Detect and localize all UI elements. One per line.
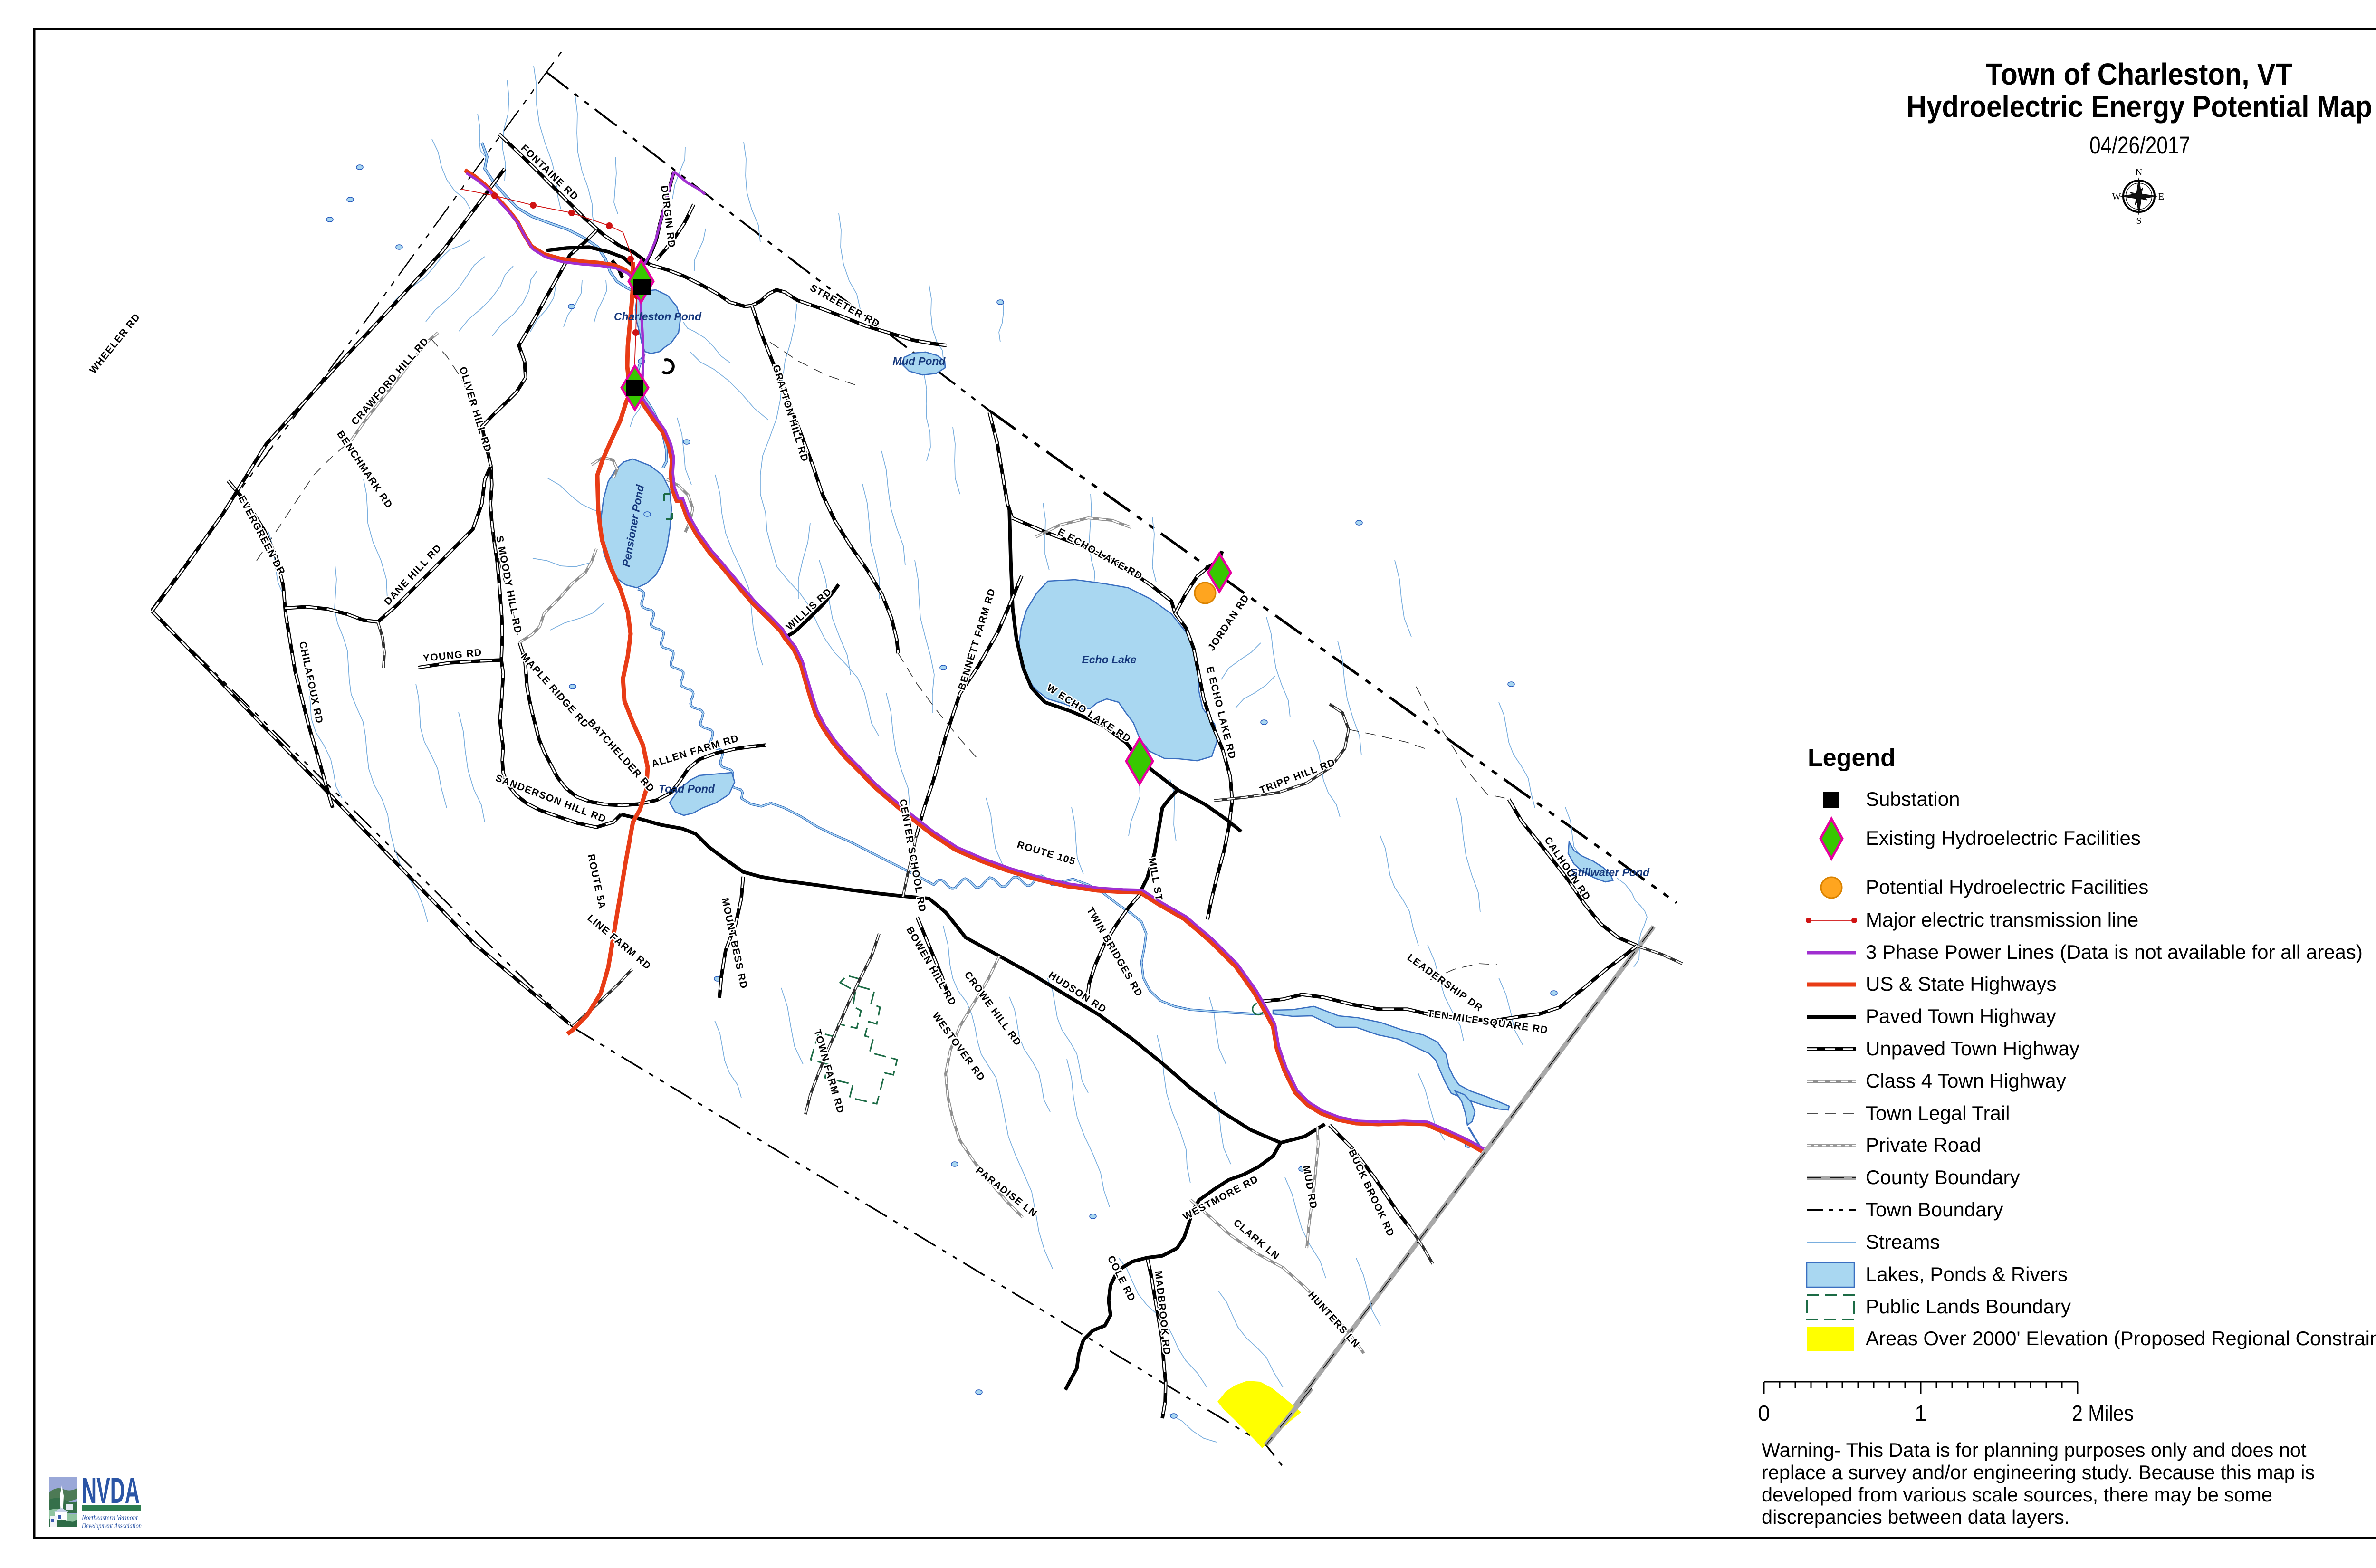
svg-text:W: W bbox=[2112, 191, 2121, 202]
svg-text:Streams: Streams bbox=[1866, 1231, 1940, 1253]
svg-text:Major electric transmission li: Major electric transmission line bbox=[1866, 908, 2138, 931]
svg-text:Mud Pond: Mud Pond bbox=[892, 355, 946, 367]
svg-text:Hydroelectric Energy Potential: Hydroelectric Energy Potential Map bbox=[1907, 89, 2372, 124]
svg-text:Lakes, Ponds & Rivers: Lakes, Ponds & Rivers bbox=[1866, 1263, 2068, 1285]
svg-text:3 Phase Power Lines (Data is n: 3 Phase Power Lines (Data is not availab… bbox=[1866, 941, 2363, 963]
svg-text:Stillwater Pond: Stillwater Pond bbox=[1571, 866, 1650, 879]
svg-text:developed from various scale s: developed from various scale sources, th… bbox=[1762, 1483, 2272, 1506]
svg-text:US & State Highways: US & State Highways bbox=[1866, 973, 2057, 995]
svg-text:Existing Hydroelectric Facilit: Existing Hydroelectric Facilities bbox=[1866, 827, 2141, 849]
svg-text:Class 4 Town Highway: Class 4 Town Highway bbox=[1866, 1070, 2066, 1092]
svg-text:Town Boundary: Town Boundary bbox=[1866, 1198, 2003, 1221]
svg-text:0: 0 bbox=[1758, 1401, 1770, 1425]
svg-text:replace a survey and/or engine: replace a survey and/or engineering stud… bbox=[1762, 1461, 2315, 1483]
svg-text:Town of Charleston, VT: Town of Charleston, VT bbox=[1986, 57, 2292, 91]
svg-text:Legend: Legend bbox=[1808, 744, 1896, 772]
svg-text:E: E bbox=[2158, 191, 2164, 202]
svg-text:Toad Pond: Toad Pond bbox=[659, 783, 715, 795]
svg-text:1: 1 bbox=[1915, 1401, 1927, 1425]
svg-text:Areas Over 2000' Elevation (Pr: Areas Over 2000' Elevation (Proposed Reg… bbox=[1866, 1327, 2376, 1349]
svg-text:04/26/2017: 04/26/2017 bbox=[2089, 132, 2190, 159]
svg-text:Substation: Substation bbox=[1866, 788, 1960, 810]
svg-text:Private Road: Private Road bbox=[1866, 1134, 1981, 1156]
svg-text:N: N bbox=[2136, 167, 2142, 178]
svg-text:Development Association: Development Association bbox=[81, 1522, 142, 1530]
svg-text:2 Miles: 2 Miles bbox=[2072, 1401, 2134, 1425]
svg-text:Paved Town Highway: Paved Town Highway bbox=[1866, 1005, 2056, 1027]
svg-text:Potential Hydroelectric Facili: Potential Hydroelectric Facilities bbox=[1866, 876, 2148, 898]
svg-text:S: S bbox=[2136, 216, 2141, 226]
svg-text:Northeastern Vermont: Northeastern Vermont bbox=[81, 1514, 138, 1522]
svg-text:Unpaved Town Highway: Unpaved Town Highway bbox=[1866, 1037, 2079, 1060]
svg-text:discrepancies between data lay: discrepancies between data layers. bbox=[1762, 1506, 2069, 1528]
svg-text:Echo Lake: Echo Lake bbox=[1082, 653, 1136, 666]
svg-text:Public Lands Boundary: Public Lands Boundary bbox=[1866, 1295, 2071, 1318]
svg-text:NVDA: NVDA bbox=[82, 1471, 140, 1511]
svg-text:Warning- This Data is for plan: Warning- This Data is for planning purpo… bbox=[1762, 1439, 2307, 1461]
svg-text:County Boundary: County Boundary bbox=[1866, 1166, 2020, 1188]
svg-text:Town Legal Trail: Town Legal Trail bbox=[1866, 1102, 2010, 1124]
svg-text:Charleston Pond: Charleston Pond bbox=[614, 310, 702, 323]
